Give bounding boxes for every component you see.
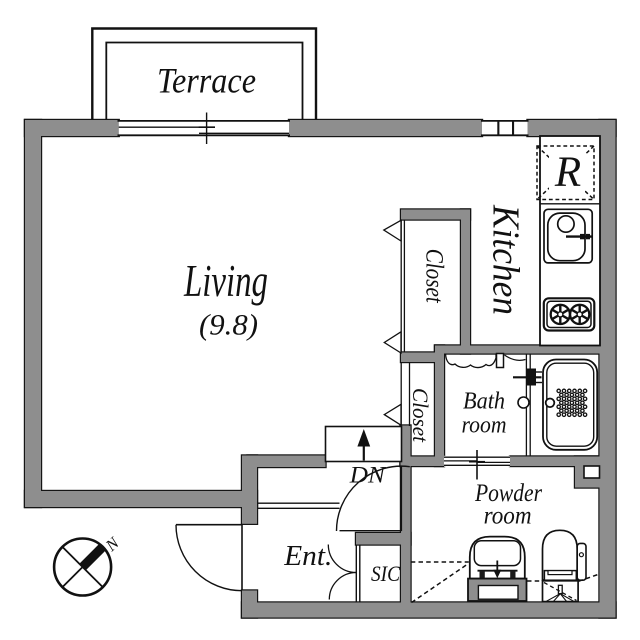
svg-text:Ent.: Ent. bbox=[283, 540, 332, 572]
svg-text:room: room bbox=[462, 413, 507, 439]
svg-text:Terrace: Terrace bbox=[157, 61, 256, 101]
svg-text:Bath: Bath bbox=[463, 389, 505, 415]
svg-text:Closet: Closet bbox=[421, 249, 448, 304]
svg-text:Kitchen: Kitchen bbox=[485, 204, 527, 315]
svg-text:Closet: Closet bbox=[408, 388, 433, 443]
svg-text:SIC: SIC bbox=[371, 561, 400, 586]
svg-text:Living: Living bbox=[183, 256, 268, 306]
svg-text:DN: DN bbox=[349, 462, 387, 487]
svg-text:R: R bbox=[554, 149, 581, 196]
svg-text:(9.8): (9.8) bbox=[199, 309, 258, 342]
svg-text:room: room bbox=[484, 501, 532, 530]
